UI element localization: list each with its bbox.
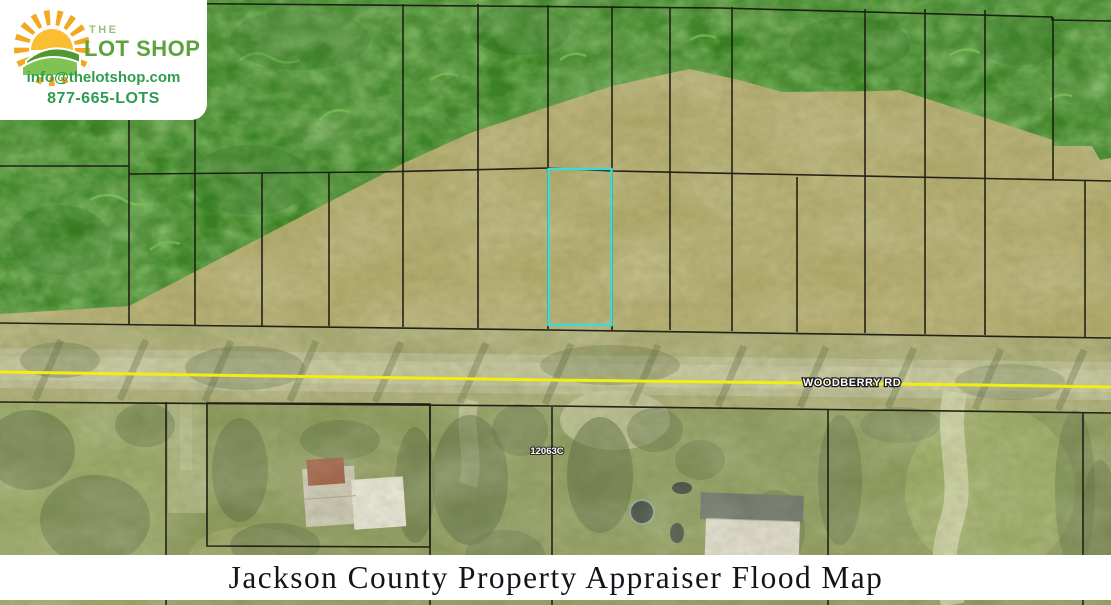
brand-phone: 877-665-LOTS <box>0 90 207 108</box>
brand-email: info@thelotshop.com <box>0 69 207 86</box>
brand-prefix: THE <box>89 24 119 36</box>
footer-title-bar: Jackson County Property Appraiser Flood … <box>0 555 1111 600</box>
flood-map-image: WOODBERRY RD 12063C THE LOT SHOP info@th… <box>0 0 1111 605</box>
logo-card: THE LOT SHOP info@thelotshop.com 877-665… <box>0 0 207 120</box>
parcel-number-label: 12063C <box>530 446 563 457</box>
road-label: WOODBERRY RD <box>803 377 901 389</box>
brand-name: LOT SHOP <box>84 36 200 62</box>
footer-title: Jackson County Property Appraiser Flood … <box>228 559 883 596</box>
